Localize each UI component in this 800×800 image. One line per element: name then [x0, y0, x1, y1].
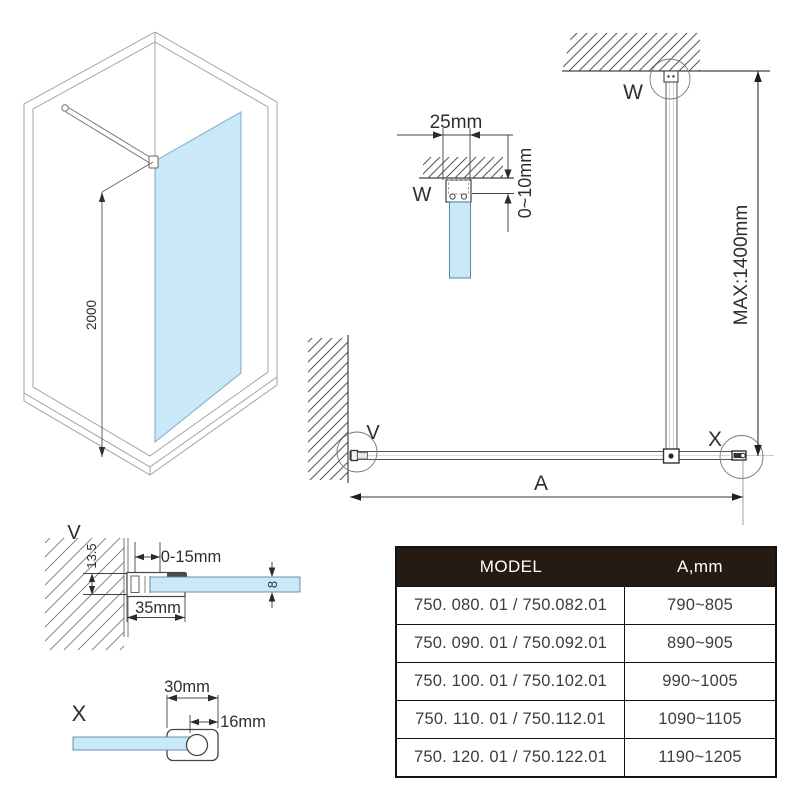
a-mm-cell: 1090~1105 [625, 710, 775, 729]
model-column-header: MODEL [397, 557, 625, 577]
height-dimension: 2000 [84, 162, 153, 457]
glass-panel-plan [350, 452, 774, 460]
support-bar-elevation [664, 71, 678, 450]
glass-thickness-dimension: 8 [265, 562, 280, 608]
a-mm-cell: 1190~1205 [625, 748, 775, 767]
glass-panel-iso [155, 112, 241, 442]
end-cap-x [732, 451, 746, 460]
spec-table: MODEL A,mm 750. 080. 01 / 750.082.01 790… [395, 546, 777, 778]
width-a-dimension: A [350, 461, 743, 525]
wall-hatch [308, 338, 348, 480]
model-cell: 750. 090. 01 / 750.092.01 [397, 625, 625, 662]
profile-width-dimension: 35mm [127, 597, 185, 622]
height-dimension-label: 2000 [84, 300, 99, 330]
assembly-marker-w: W [623, 81, 643, 104]
support-bar-iso [62, 105, 158, 168]
table-row: 750. 110. 01 / 750.112.01 1090~1105 [397, 700, 775, 738]
detail-x-marker: X [72, 701, 87, 726]
a-mm-cell: 890~905 [625, 634, 775, 653]
model-cell: 750. 120. 01 / 750.122.01 [397, 739, 625, 776]
isometric-view: 2000 [10, 15, 300, 495]
a-mm-cell: 790~805 [625, 596, 775, 615]
tube-diameter-label: 16mm [220, 713, 266, 731]
assembly-marker-v: V [366, 422, 380, 444]
bar-length-dimension: MAX:1400mm [731, 71, 762, 456]
profile-width-label: 35mm [135, 599, 181, 617]
table-row: 750. 090. 01 / 750.092.01 890~905 [397, 624, 775, 662]
adjust-range-dimension: 0-15mm [135, 542, 221, 573]
end-profile-width-label: 30mm [164, 678, 210, 696]
profile-tube [187, 735, 208, 756]
bar-glass-connector [664, 449, 680, 463]
profile-depth-label: 13.5 [84, 543, 99, 568]
detail-x-section: X 30mm 16mm [45, 675, 305, 785]
table-row: 750. 120. 01 / 750.122.01 1190~1205 [397, 738, 775, 776]
a-mm-cell: 990~1005 [625, 672, 775, 691]
detail-v-section: V 13.5 0-15mm 35mm [45, 515, 325, 675]
assembly-marker-x: X [708, 428, 722, 451]
ceiling-hatch-main [562, 33, 700, 71]
model-cell: 750. 100. 01 / 750.102.01 [397, 663, 625, 700]
table-row: 750. 100. 01 / 750.102.01 990~1005 [397, 662, 775, 700]
a-mm-column-header: A,mm [625, 557, 775, 577]
width-a-label: A [534, 472, 548, 495]
installation-diagram-page: { "drawing": { "iso": { "height_label": … [0, 0, 800, 800]
glass-panel-x-section [73, 737, 193, 750]
adjust-range-label: 0-15mm [161, 548, 222, 566]
spec-table-header: MODEL A,mm [397, 548, 775, 586]
bar-length-label: MAX:1400mm [731, 205, 752, 325]
table-row: 750. 080. 01 / 750.082.01 790~805 [397, 586, 775, 624]
assembly-drawing: W V X MAX:1400mm A [300, 20, 785, 535]
glass-thickness-label: 8 [265, 581, 280, 588]
model-cell: 750. 110. 01 / 750.112.01 [397, 701, 625, 738]
model-cell: 750. 080. 01 / 750.082.01 [397, 587, 625, 624]
